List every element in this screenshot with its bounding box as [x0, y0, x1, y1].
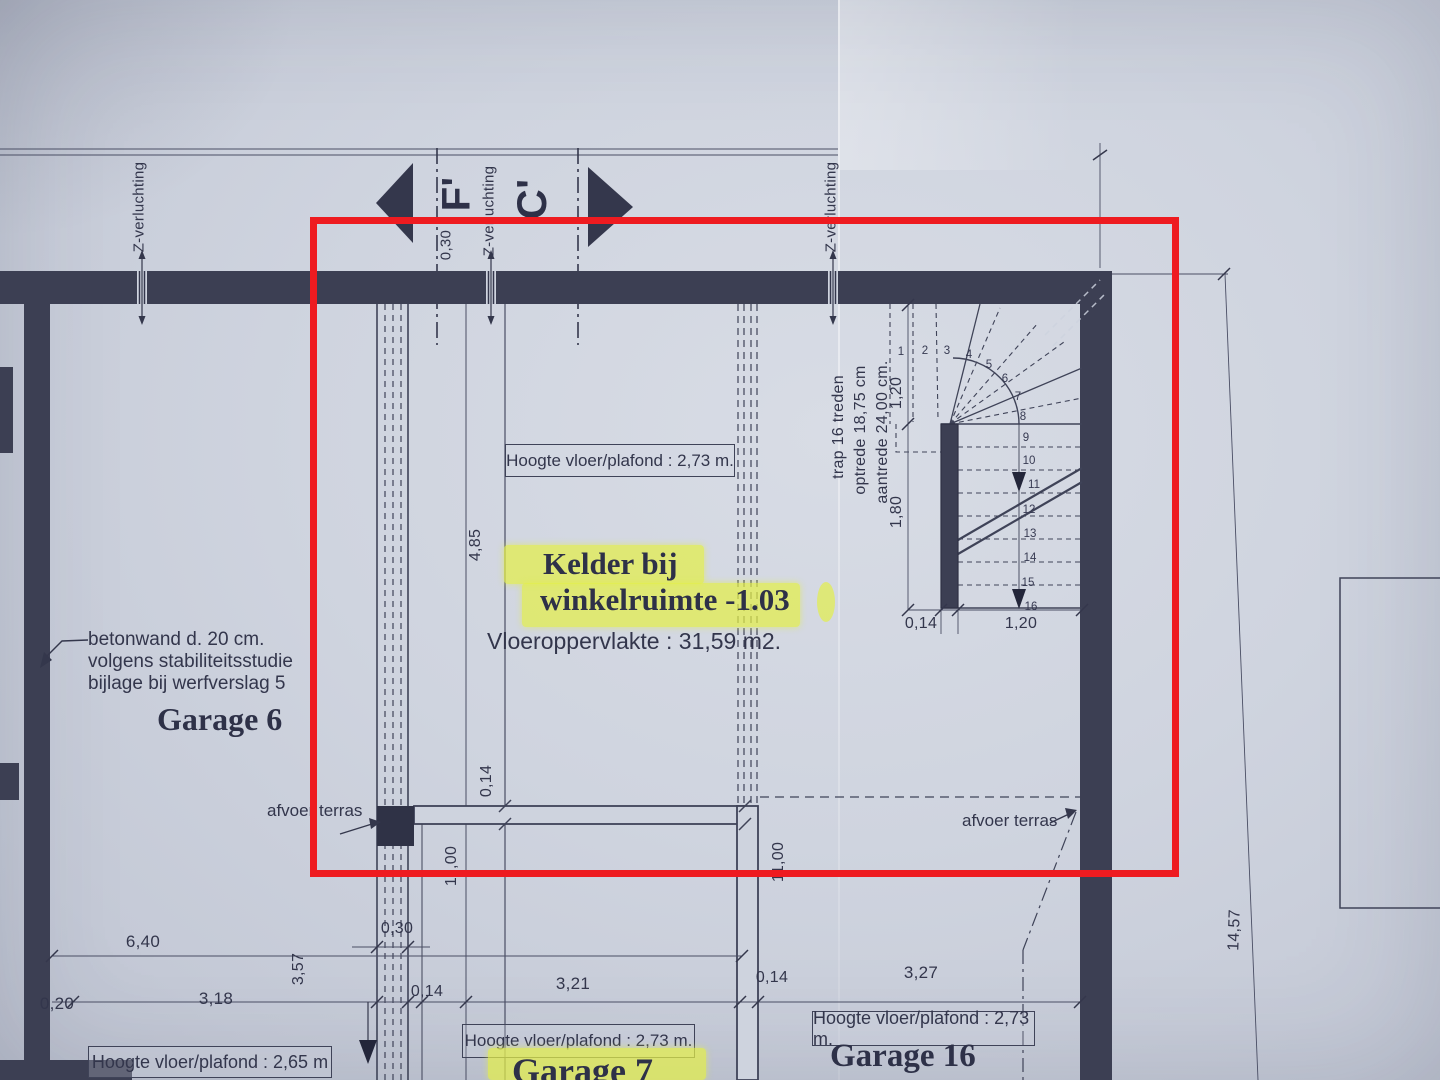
- dim-garage6-width: 6,40: [126, 932, 160, 952]
- shaft-arrow: [359, 1002, 377, 1064]
- dim-shaft-wall: 0,14: [411, 983, 443, 1001]
- garage6-height-note: Hoogte vloer/plafond : 2,65 m: [88, 1046, 332, 1078]
- dim-shaft-width: 0,30: [381, 920, 413, 938]
- garage6-name: Garage 6: [157, 701, 282, 738]
- dim-wall-left: 0,20: [40, 994, 74, 1014]
- betonwand-line3: bijlage bij werfverslag 5: [88, 673, 328, 695]
- betonwand-line2: volgens stabiliteitsstudie: [88, 651, 328, 673]
- betonwand-line1: betonwand d. 20 cm.: [88, 629, 328, 651]
- annotation-highlight-box: [310, 217, 1179, 877]
- dim-garage7-width: 3,21: [556, 974, 590, 994]
- garage16-name: Garage 16: [830, 1038, 976, 1075]
- dim-garage6-depth: 3,57: [290, 953, 308, 985]
- dim-garage16-width: 3,27: [904, 963, 938, 983]
- dim-total-right: 14,57: [1225, 909, 1244, 951]
- garage7-name: Garage 7: [512, 1050, 653, 1080]
- section-marker-c: C': [508, 179, 556, 220]
- dim-mid-wall: 0,14: [756, 969, 788, 987]
- legend-rectangle: [1340, 578, 1440, 908]
- blueprint-photo: Z-verluchting Z-verluchting Z-verluchtin…: [0, 0, 1440, 1080]
- betonwand-note: betonwand d. 20 cm. volgens stabiliteits…: [88, 629, 328, 695]
- vent-label-left: Z-verluchting: [131, 162, 148, 253]
- top-edge-lines: [0, 149, 838, 155]
- dim-garage6-inner: 3,18: [199, 989, 233, 1009]
- section-marker-f: F': [435, 177, 480, 212]
